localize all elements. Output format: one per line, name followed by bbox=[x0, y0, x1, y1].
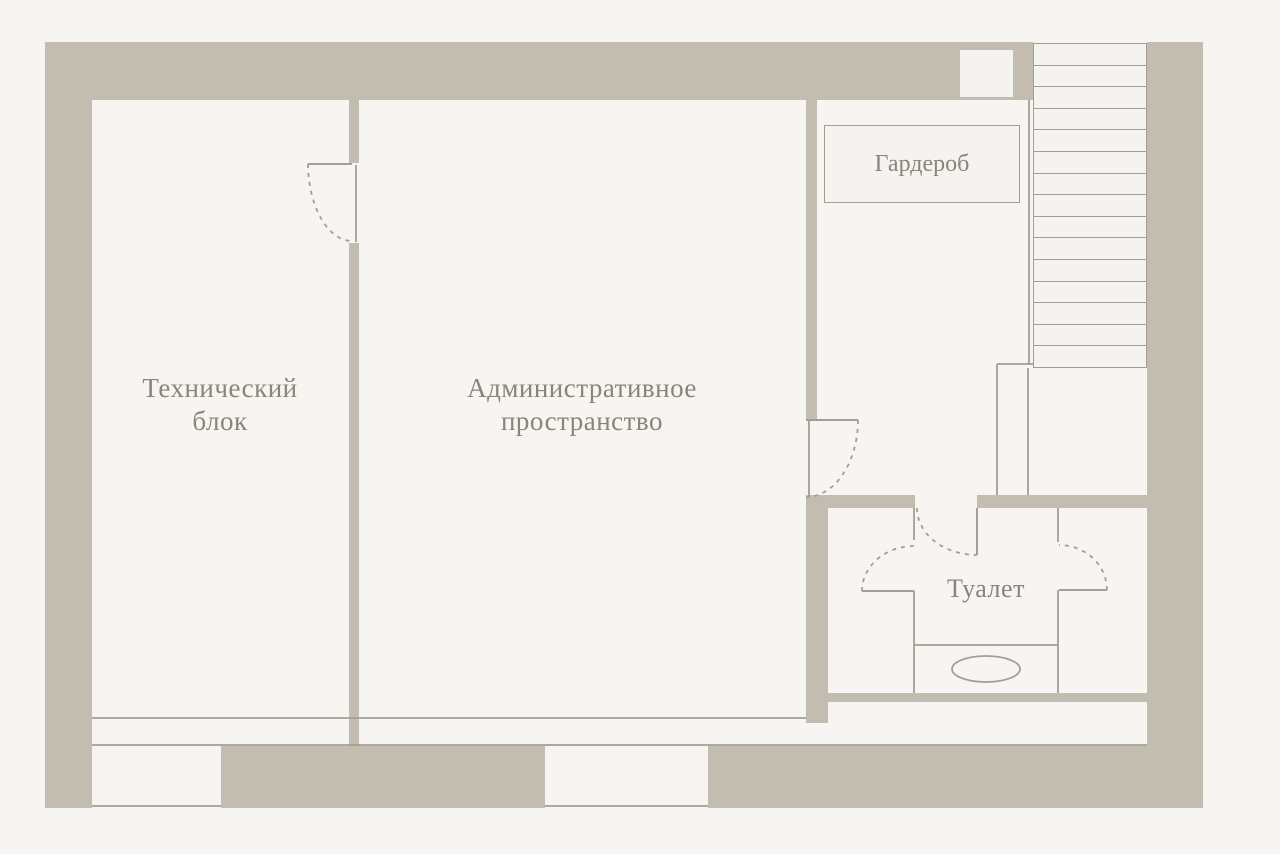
stair-tread bbox=[1034, 44, 1146, 66]
wall-toilet-bottom bbox=[806, 693, 1147, 702]
wall-toilet-top-left bbox=[806, 495, 915, 508]
stair-tread bbox=[1034, 130, 1146, 152]
staircase bbox=[1033, 43, 1147, 368]
wall-bottom-middle bbox=[221, 746, 545, 808]
stair-tread bbox=[1034, 217, 1146, 239]
wall-admin-right bbox=[806, 100, 817, 420]
stair-tread bbox=[1034, 109, 1146, 131]
room-label-toilet: Туалет bbox=[906, 574, 1066, 604]
stair-tread bbox=[1034, 152, 1146, 174]
door2-swing-arc bbox=[806, 420, 858, 497]
room-label-admin-space: Административное пространство bbox=[432, 372, 732, 438]
wall-top bbox=[45, 42, 1033, 100]
door5-swing-arc bbox=[1059, 545, 1107, 590]
stair-tread bbox=[1034, 303, 1146, 325]
wall-niche bbox=[960, 50, 1013, 97]
door1-swing-arc bbox=[308, 164, 352, 241]
stair-tread bbox=[1034, 260, 1146, 282]
stair-tread bbox=[1034, 174, 1146, 196]
stair-tread bbox=[1034, 195, 1146, 217]
stair-tread bbox=[1034, 238, 1146, 260]
door3-swing-arc bbox=[917, 508, 977, 555]
basin-ellipse-icon bbox=[952, 656, 1020, 682]
room-label-wardrobe: Гардероб bbox=[824, 125, 1020, 203]
stair-tread bbox=[1034, 87, 1146, 109]
wall-toilet-top-right bbox=[977, 495, 1147, 508]
wall-divider-upper bbox=[349, 100, 359, 163]
room-label-tech-block: Технический блок bbox=[125, 372, 315, 438]
wall-left bbox=[45, 42, 92, 808]
wall-bottom-right bbox=[708, 746, 1147, 808]
floor-plan: Технический блок Административное простр… bbox=[0, 0, 1280, 854]
wall-divider-lower bbox=[349, 243, 359, 746]
wardrobe-label-text: Гардероб bbox=[875, 151, 970, 178]
stair-tread bbox=[1034, 66, 1146, 88]
stair-tread bbox=[1034, 282, 1146, 304]
stair-tread bbox=[1034, 325, 1146, 347]
stair-tread bbox=[1034, 346, 1146, 368]
wall-right bbox=[1147, 42, 1203, 808]
wall-toilet-left bbox=[806, 495, 828, 723]
